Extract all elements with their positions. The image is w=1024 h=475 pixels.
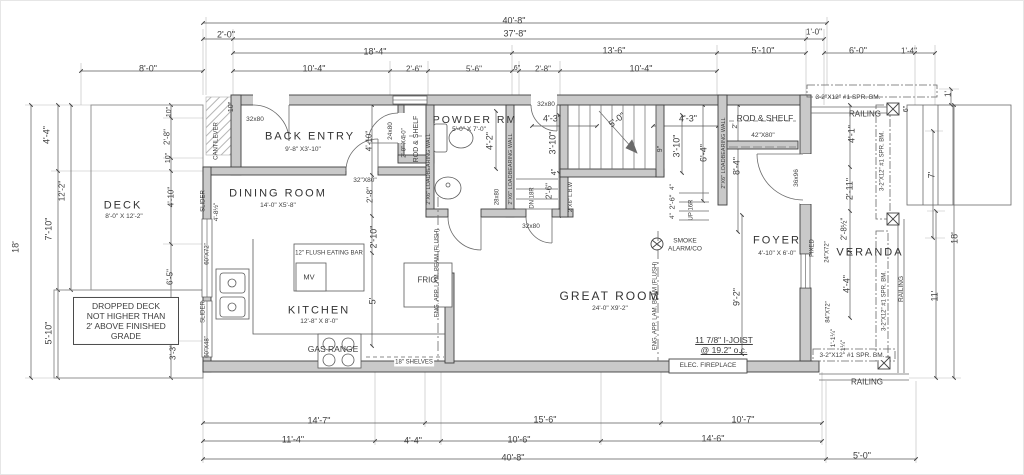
dim-great-9-2: 9'-2" [732,288,743,306]
room-dining-size: 14'-0" X5'-8" [260,202,296,210]
dim-hall-3-10: 3'-10" [548,132,559,155]
mv-label: MV [303,274,314,283]
dim-top-18-4: 18'-4" [364,47,387,58]
smoke-alarm-label: SMOKE ALARM/CO [668,237,702,252]
room-back-entry: BACK ENTRY [265,131,355,144]
dim-stair-6-4: 6'-4" [699,144,710,162]
dim-stair-9in: 9" [657,146,665,152]
beam-label-west: ENG. APP. LAM. BEAM (FLUSH) [434,229,441,318]
cantilever-label: CANTILEVER [213,122,220,160]
dim-top-main: 37'-8" [504,29,527,40]
lbw-powder-west: 2"X6" LOADBEARING WALL [426,133,432,204]
window-fixed: FIXED [809,239,816,257]
door-24x80: 24x80 [387,122,395,140]
dim-left-3-3: 3'-3" [168,344,177,360]
dim-veranda-2-8h: 2'-8½" [839,218,848,241]
beam-bottom-label: 3-2"X12" #1 SPR. BM. [819,352,886,360]
dim-veranda-1-1q: 1'-1¼" [830,329,838,347]
door-32x80-great: 32x80 [522,223,540,231]
rod-shelf-left: ROD & SHELF [413,116,421,163]
dim-top-13-6: 13'-6" [603,46,626,57]
dim-left-5-10: 5'-10" [44,322,55,345]
dim-bot-14-7: 14'-7" [308,416,331,427]
dim-bot-15-6: 15'-6" [534,415,557,426]
dim-top-2-8: 2'-8" [535,64,551,73]
lbw-hall: 2"X6" L.B.W [568,182,574,212]
lbw-foyer-west: 2"X6" LOADBEARING WALL [721,117,727,188]
railing-top-label: RAILING [849,109,881,118]
door-32x80-backentry: 32x80 [246,116,264,124]
veranda-railing [811,105,1011,380]
frig-label: FRIG [417,275,436,284]
dim-bot-11-4: 11'-4" [282,435,304,446]
dim-foyer-4-1: 4'-1" [847,125,858,143]
dim-top-2-6: 2'-6" [406,64,422,73]
dim-up-4in-a: 4" [669,184,677,190]
floorplan-canvas: 40'-8"2'-0"37'-8"1'-0"18'-4"13'-6"5'-10"… [0,0,1024,475]
note-dropped-deck: DROPPED DECK NOT HIGHER THAN 2' ABOVE FI… [73,297,179,345]
room-great: GREAT ROOM [560,289,661,303]
dim-right-18: 18' [950,232,961,244]
dim-bot-overall: 40'-8" [502,453,525,464]
window-24x72: 24"X72" [824,241,831,263]
dim-veranda-2-11: 2'-11" [845,178,856,200]
dim-left-10-upper: 10" [166,107,174,117]
room-powder-size: 5'-0" X 7'-0" [452,126,486,134]
dim-up-4in-b: 4" [669,213,677,219]
dim-top-veranda-offset: 1'-0" [806,27,822,36]
dim-top-overall: 40'-8" [503,16,526,27]
smoke-alarm-icon [651,238,663,250]
dim-foyer-2: 2' [732,123,740,128]
dim-foyer-8-4: 8'-4" [732,157,743,175]
room-great-size: 24'-0" X9'-2" [592,305,628,313]
dim-top-6-0: 6'-0" [849,46,867,57]
dim-top-1-4: 1'-4" [901,46,917,55]
slider-upper: SLIDER [200,190,207,212]
dim-slider-4-8h: 4'-8½" [213,203,221,221]
dim-hall-4in: 4" [551,169,559,175]
dim-bot-14-6: 14'-6" [702,434,725,445]
beam-right-lower-label: 3-2"X12" #1 SPR. BM. [881,271,888,331]
room-back-entry-size: 9'-8" X3'-10" [285,146,321,154]
room-kitchen: KITCHEN [288,305,350,318]
dim-left-12-2: 12'-2" [57,181,66,201]
room-foyer-size: 4'-10" X 6'-0" [758,250,795,258]
dim-right-7: 7' [927,172,938,179]
powder-fixtures [434,124,473,199]
dim-top-10-4-right: 10'-4" [630,64,653,75]
dim-left-7-10: 7'-10" [44,218,55,241]
door-42x80: 42"X80" [751,132,774,140]
room-dining: DINING ROOM [229,188,327,201]
dim-right-6in: 6" [903,106,911,112]
dim-up-2-6: 2'-6" [669,195,678,210]
closet-size-2x4: 2'-0" X4'-0" [401,128,408,158]
gas-range-label: GAS RANGE [308,344,359,354]
eating-bar-label: 12" FLUSH EATING BAR [295,250,363,257]
dim-top-5-6: 5'-6" [466,64,482,73]
dim-hall-4-3: 4'-3" [543,114,561,125]
dim-right-11: 11' [930,290,941,301]
dim-left-10-lower: 10" [165,153,173,163]
dim-hall-2-6: 2'-6" [544,183,553,199]
beam-top-label: 3-2"X12" #1 SPR. BM. [816,94,881,102]
dim-kitchen-5: 5' [368,298,379,305]
slider-lower: SLIDER [200,301,207,323]
room-kitchen-size: 12'-8" X 8'-0" [300,318,337,326]
dim-left-2-8: 2'-8" [162,129,171,145]
dim-dining-4-10: 4'-10" [364,131,373,151]
railing-bottom-label: RAILING [851,377,883,386]
stair-up: UP 16R [688,200,695,221]
dim-bot-4-4: 4'-4" [404,436,422,447]
dim-stair-4-3: 4'-3" [679,114,697,125]
dim-dining-2-8: 2'-8" [365,187,374,203]
dim-cantilever-10: 10" [228,102,236,112]
shelves-label: 18" SHELVES [394,359,434,366]
dim-top-5-10: 5'-10" [752,46,775,57]
lbw-powder-east: 2"X6" LOADBEARING WALL [508,133,514,204]
door-28x80: 28x80 [494,189,501,205]
dim-stair-3-10: 3'-10" [672,135,683,158]
note-ijoist: 11 7/8" I-JOIST @ 19.2" o.c. [695,335,753,355]
dim-left-4-10: 4'-10" [166,187,175,207]
window-60x48: 60"X48" [204,336,211,358]
dim-powder-4-2: 4'-2" [485,132,496,150]
window-60x72: 60"X72" [204,243,211,265]
room-veranda: VERANDA [836,247,903,260]
extension-lines [25,17,961,463]
dim-bot-5-0: 5'-0" [853,451,871,462]
dim-left-6-5: 6'-5" [165,269,174,285]
dim-left-18: 18' [11,241,22,253]
window-84x72: 84"X72" [825,301,832,323]
door-36x96: 36x96 [793,169,801,187]
beam-label-east: ENG. APP. LAM. BEAM (FLUSH) [652,262,659,351]
dim-left-4-4: 4'-4" [42,126,53,144]
door-32x80-hall-top: 32x80 [536,101,556,109]
door-32x80-dining: 32"X80" [353,177,376,185]
room-powder: POWDER RM [433,114,518,126]
dim-top-6in: 6" [514,65,520,73]
railing-right-label: RAILING [898,276,906,302]
dim-bot-10-7: 10'-7" [732,415,755,426]
stair-dn: DN 18R [529,187,536,208]
elec-fireplace-label: ELEC. FIREPLACE [680,362,737,370]
room-deck: DECK [104,200,143,213]
beam-right-upper-label: 3-2"X12" #1 SPR. BM. [879,131,886,191]
room-foyer: FOYER [753,235,801,248]
dim-veranda-4-4: 4'-4" [842,275,853,293]
dim-top-8-0: 8'-0" [139,64,157,75]
rod-shelf-foyer: ROD & SHELF [737,113,794,123]
dim-kitchen-2-10: 2'-10" [369,226,380,249]
dim-right-1: 1' [943,91,952,97]
dim-top-cantilever: 2'-0" [217,30,235,41]
dim-top-10-4-left: 10'-4" [303,64,326,75]
room-deck-size: 8'-0" X 12'-2" [105,213,142,221]
dim-bot-10-6: 10'-6" [508,435,531,446]
